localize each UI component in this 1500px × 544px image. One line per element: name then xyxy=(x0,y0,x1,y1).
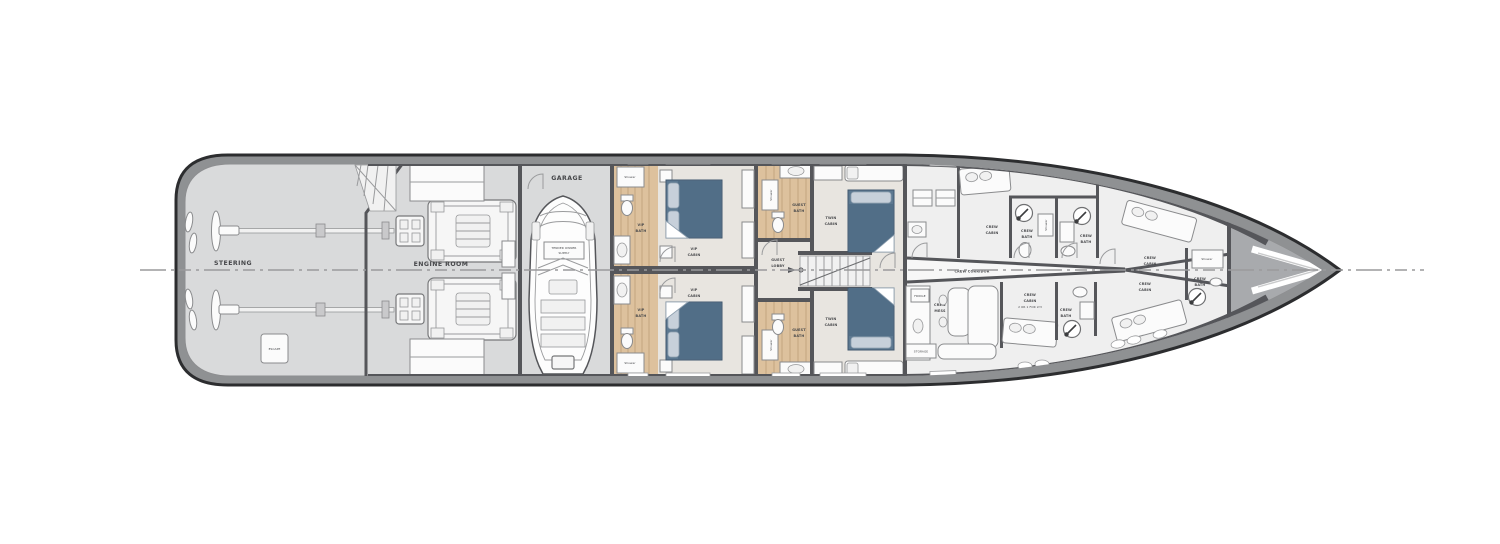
yacht-lower-deck-plan: ESCAPE STEERING xyxy=(0,0,1500,544)
svg-text:MESS: MESS xyxy=(934,309,946,313)
steering-label: STEERING xyxy=(214,260,252,267)
crew-cabin-note: 2 OR 1 FOR LY3 xyxy=(1018,305,1042,309)
mess-sofa xyxy=(968,286,998,348)
svg-text:BATH: BATH xyxy=(1061,314,1072,318)
twin-cabin-label: TWIN xyxy=(826,216,837,220)
tender-label-1: TENDER OWNER xyxy=(550,246,576,250)
tender-console xyxy=(549,280,577,294)
guest-bath-bottom: Shower GUEST BATH xyxy=(756,298,814,376)
twin-cabin-label: TWIN xyxy=(826,317,837,321)
tender-outboard xyxy=(552,356,574,369)
nightstand xyxy=(660,360,672,372)
shower-label: Shower xyxy=(769,189,773,201)
twin-bed xyxy=(848,190,894,252)
storage-label: STORAGE xyxy=(914,350,929,354)
svg-text:CABIN: CABIN xyxy=(688,253,701,257)
svg-text:CABIN: CABIN xyxy=(688,294,701,298)
garage-bulkhead xyxy=(518,160,522,382)
guest-lobby-label: GUEST xyxy=(771,258,785,262)
svg-text:BATH: BATH xyxy=(636,229,647,233)
guest-bulkhead xyxy=(754,160,758,382)
guest-bath-label: GUEST xyxy=(792,203,806,207)
wardrobe xyxy=(742,286,754,322)
shower-label: Shower xyxy=(624,361,636,365)
svg-text:CABIN: CABIN xyxy=(1144,262,1157,266)
svg-text:CABIN: CABIN xyxy=(1024,299,1037,303)
guest-bath-top: Shower GUEST BATH xyxy=(756,164,814,242)
vip-bath-label: VIP xyxy=(638,308,645,312)
vip-bed-bottom xyxy=(666,302,722,360)
svg-text:BATH: BATH xyxy=(794,334,805,338)
nightstand xyxy=(660,286,672,298)
shower-stall xyxy=(1080,302,1094,319)
garage-label: GARAGE xyxy=(551,175,582,182)
shower-label: Shower xyxy=(1201,257,1213,261)
vip-cabin-label: VIP xyxy=(691,247,698,251)
crew-bath-label: CREW xyxy=(1060,308,1072,312)
deck-plan-canvas: ESCAPE STEERING xyxy=(0,0,1500,544)
wardrobe xyxy=(742,170,754,208)
crew-cabin-label: CREW xyxy=(1024,293,1036,297)
svg-text:BATH: BATH xyxy=(794,209,805,213)
svg-text:CABIN: CABIN xyxy=(825,222,838,226)
svg-text:BATH: BATH xyxy=(636,314,647,318)
shower-label: Shower xyxy=(624,175,636,179)
svg-text:CABIN: CABIN xyxy=(1139,288,1152,292)
svg-text:LOBBY: LOBBY xyxy=(771,264,785,268)
crew-mess: FRIDGE CREW MESS STORAGE xyxy=(906,286,998,360)
shower-label: Shower xyxy=(1044,219,1048,231)
vip-bath-label: VIP xyxy=(638,223,645,227)
wardrobe xyxy=(742,222,754,258)
shower-stall xyxy=(1060,222,1074,242)
stairs-guest xyxy=(798,251,872,291)
svg-text:CABIN: CABIN xyxy=(825,323,838,327)
vip-bulkhead xyxy=(610,160,614,382)
wardrobe xyxy=(742,336,754,374)
vip-bath-bottom: VIP BATH Shower xyxy=(614,274,658,376)
svg-text:BATH: BATH xyxy=(1081,240,1092,244)
chair xyxy=(939,317,947,327)
crew-cabin-label: CREW xyxy=(986,225,998,229)
twin-shelves xyxy=(814,166,842,180)
svg-text:BATH: BATH xyxy=(1195,283,1206,287)
vip-bed-top xyxy=(666,180,722,238)
mess-sofa-2 xyxy=(938,344,996,359)
mess-sink xyxy=(913,319,923,333)
shower-label: Shower xyxy=(769,339,773,351)
crew-cabin-label: CREW xyxy=(1144,256,1156,260)
engine-room-cabinet xyxy=(502,241,515,267)
chair xyxy=(939,295,947,305)
fridge-label: FRIDGE xyxy=(914,294,925,298)
engine-room-label: ENGINE ROOM xyxy=(414,261,469,268)
svg-text:BATH: BATH xyxy=(1022,235,1033,239)
escape-label: ESCAPE xyxy=(269,347,281,351)
crew-bath-label: CREW xyxy=(1021,229,1033,233)
crew-bath-label: CREW xyxy=(1194,277,1206,281)
twin-bed xyxy=(848,288,894,350)
vip-cabin-label: VIP xyxy=(691,288,698,292)
crew-bath-label: CREW xyxy=(1080,234,1092,238)
crew-cabin-label: CREW xyxy=(1139,282,1151,286)
svg-text:CABIN: CABIN xyxy=(986,231,999,235)
tender: TENDER OWNER SUPPLY xyxy=(529,196,597,374)
vip-bath-top: Shower VIP BATH xyxy=(614,164,658,266)
tender-label-2: SUPPLY xyxy=(558,251,569,255)
guest-bath-label: GUEST xyxy=(792,328,806,332)
mess-table xyxy=(948,288,970,336)
